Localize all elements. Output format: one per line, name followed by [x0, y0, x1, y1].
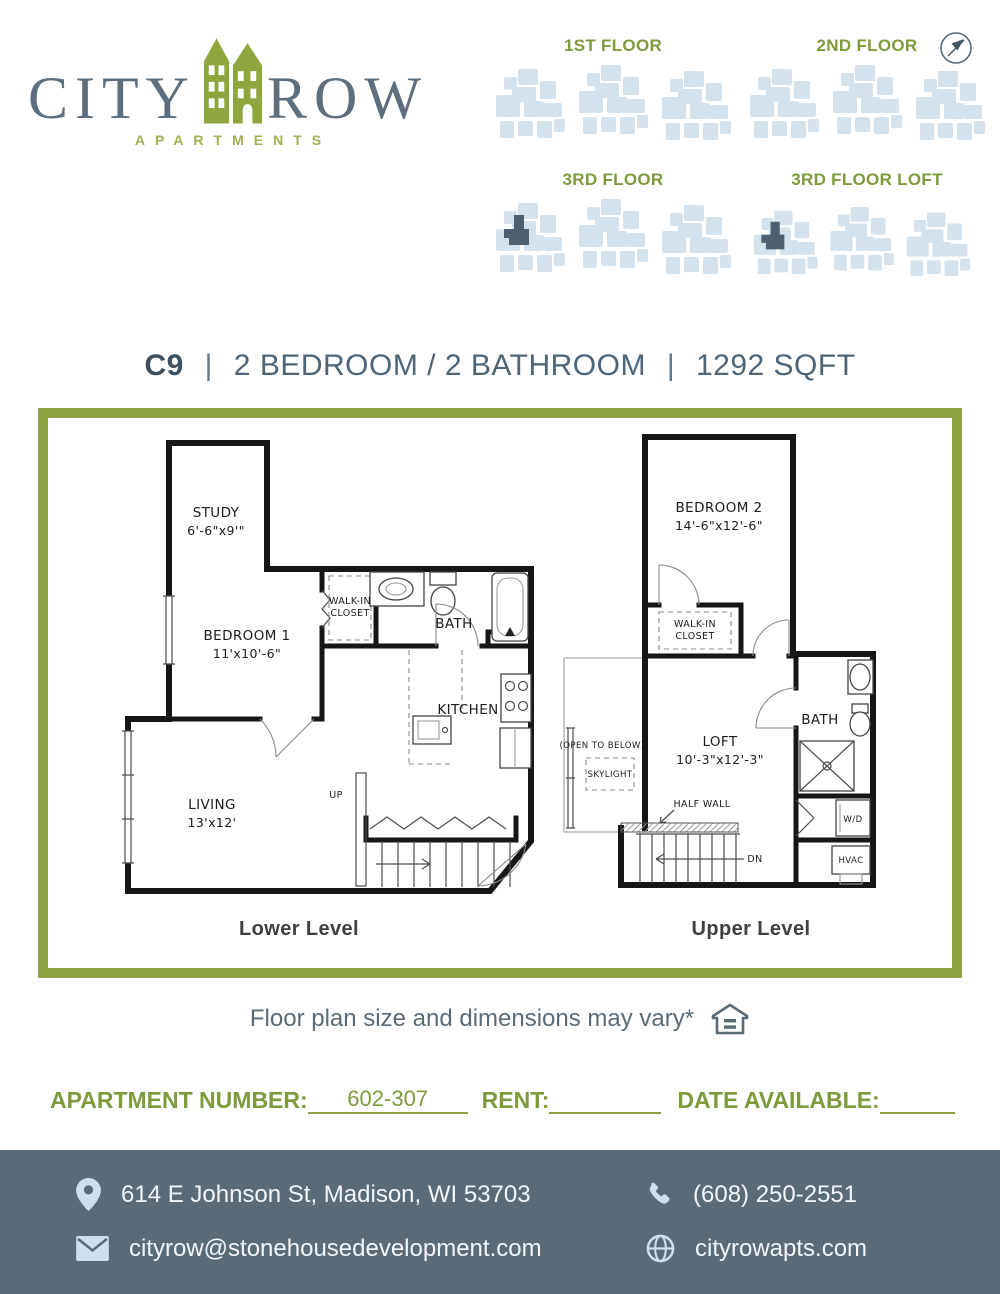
door-swings — [659, 565, 796, 728]
rent-label: RENT: — [482, 1087, 550, 1114]
bedroom2-dims: 14'-6"x12'-6" — [675, 518, 763, 533]
upper-level-caption: Upper Level — [556, 918, 946, 941]
floor-map-1st: 1ST FLOOR — [494, 36, 732, 143]
address-text: 614 E Johnson St, Madison, WI 53703 — [121, 1181, 531, 1209]
phone-text: (608) 250-2551 — [693, 1181, 857, 1209]
details-line: APARTMENT NUMBER: 602-307 RENT: DATE AVA… — [50, 1086, 955, 1114]
floor-map-3rd-label: 3RD FLOOR — [494, 170, 732, 190]
stairs-down — [636, 834, 744, 883]
floor-map-3rd-loft: 3RD FLOOR LOFT — [748, 170, 986, 277]
floor-map-2nd-label: 2ND FLOOR — [748, 36, 986, 56]
equal-housing-icon — [710, 1002, 750, 1036]
study-label: STUDY — [193, 505, 240, 521]
date-available-blank — [880, 1086, 955, 1114]
dn-label: DN — [747, 854, 762, 865]
disclaimer-text: Floor plan size and dimensions may vary* — [250, 1005, 694, 1033]
walkin-closet-label-2: CLOSET — [675, 631, 714, 642]
floor-map-3rd-loft-plan — [750, 199, 985, 277]
bedroom1-dims: 11'x10'-6" — [213, 646, 281, 661]
loft-dims: 10'-3"x12'-3" — [676, 752, 764, 767]
floor-map-2nd: 2ND FLOOR — [748, 36, 986, 143]
phone-item: (608) 250-2551 — [646, 1178, 960, 1211]
half-wall-leader — [660, 810, 674, 823]
website-item: cityrowapts.com — [646, 1234, 960, 1263]
floor-map-1st-plan — [496, 65, 731, 143]
floor-plan-box: STUDY 6'-6"x9'" BEDROOM 1 11'x10'-6" WAL… — [38, 408, 962, 978]
logo-subtitle: APARTMENTS — [52, 132, 404, 148]
logo-word-city: CITY — [28, 71, 196, 126]
living-label: LIVING — [188, 797, 236, 813]
bedroom1-label: BEDROOM 1 — [204, 628, 291, 644]
apartment-number-label: APARTMENT NUMBER: — [50, 1087, 308, 1114]
bath-label: BATH — [801, 712, 838, 728]
contact-footer: 614 E Johnson St, Madison, WI 53703 (608… — [0, 1150, 1000, 1294]
lower-level-caption: Lower Level — [64, 918, 534, 941]
bedroom2-label: BEDROOM 2 — [676, 500, 763, 516]
logo-word-row: ROW — [267, 71, 428, 126]
wd-label: W/D — [843, 815, 862, 825]
skylight-label: SKYLIGHT — [588, 770, 633, 780]
unit-code: C9 — [144, 349, 183, 382]
hvac-label: HVAC — [838, 856, 863, 866]
kitchen-label: KITCHEN — [437, 702, 498, 718]
stairs-up — [356, 773, 510, 887]
disclaimer-note: Floor plan size and dimensions may vary* — [0, 1002, 1000, 1036]
website-text: cityrowapts.com — [695, 1235, 867, 1263]
living-dims: 13'x12' — [188, 815, 237, 830]
email-item: cityrow@stonehousedevelopment.com — [76, 1234, 646, 1263]
floor-map-3rd-loft-label: 3RD FLOOR LOFT — [748, 170, 986, 190]
date-available-label: DATE AVAILABLE: — [677, 1087, 879, 1114]
floor-map-2nd-plan — [750, 65, 985, 143]
buildings-icon — [202, 30, 264, 126]
location-pin-icon — [76, 1178, 101, 1211]
phone-icon — [646, 1181, 673, 1208]
apartment-number-value: 602-307 — [308, 1086, 468, 1114]
square-footage: 1292 SQFT — [696, 349, 856, 382]
globe-icon — [646, 1234, 675, 1263]
up-label: UP — [329, 790, 342, 801]
study-dims: 6'-6"x9'" — [187, 523, 245, 538]
rent-blank — [549, 1086, 661, 1114]
walkin-closet-label-2: CLOSET — [330, 608, 369, 619]
loft-label: LOFT — [702, 734, 737, 750]
open-to-below-label: (OPEN TO BELOW) — [559, 741, 644, 751]
floor-map-3rd: 3RD FLOOR — [494, 170, 732, 277]
half-wall-label: HALF WALL — [674, 799, 731, 810]
lower-level-plan: STUDY 6'-6"x9'" BEDROOM 1 11'x10'-6" WAL… — [64, 428, 534, 933]
upper-level-plan: BEDROOM 2 14'-6"x12'-6" WALK-IN CLOSET L… — [556, 428, 946, 933]
email-text: cityrow@stonehousedevelopment.com — [129, 1235, 542, 1263]
beds-baths: 2 BEDROOM / 2 BATHROOM — [234, 349, 646, 382]
half-wall — [621, 823, 738, 832]
floor-map-3rd-plan — [496, 199, 731, 277]
bath-label: BATH — [435, 616, 472, 632]
floor-map-1st-label: 1ST FLOOR — [494, 36, 732, 56]
address-item: 614 E Johnson St, Madison, WI 53703 — [76, 1178, 646, 1211]
envelope-icon — [76, 1236, 109, 1261]
walkin-closet-label-1: WALK-IN — [329, 596, 371, 607]
cityrow-logo: CITY ROW APARTMENTS — [52, 30, 404, 148]
unit-title: C9 | 2 BEDROOM / 2 BATHROOM | 1292 SQFT — [0, 349, 1000, 383]
walkin-closet-label-1: WALK-IN — [674, 619, 716, 630]
